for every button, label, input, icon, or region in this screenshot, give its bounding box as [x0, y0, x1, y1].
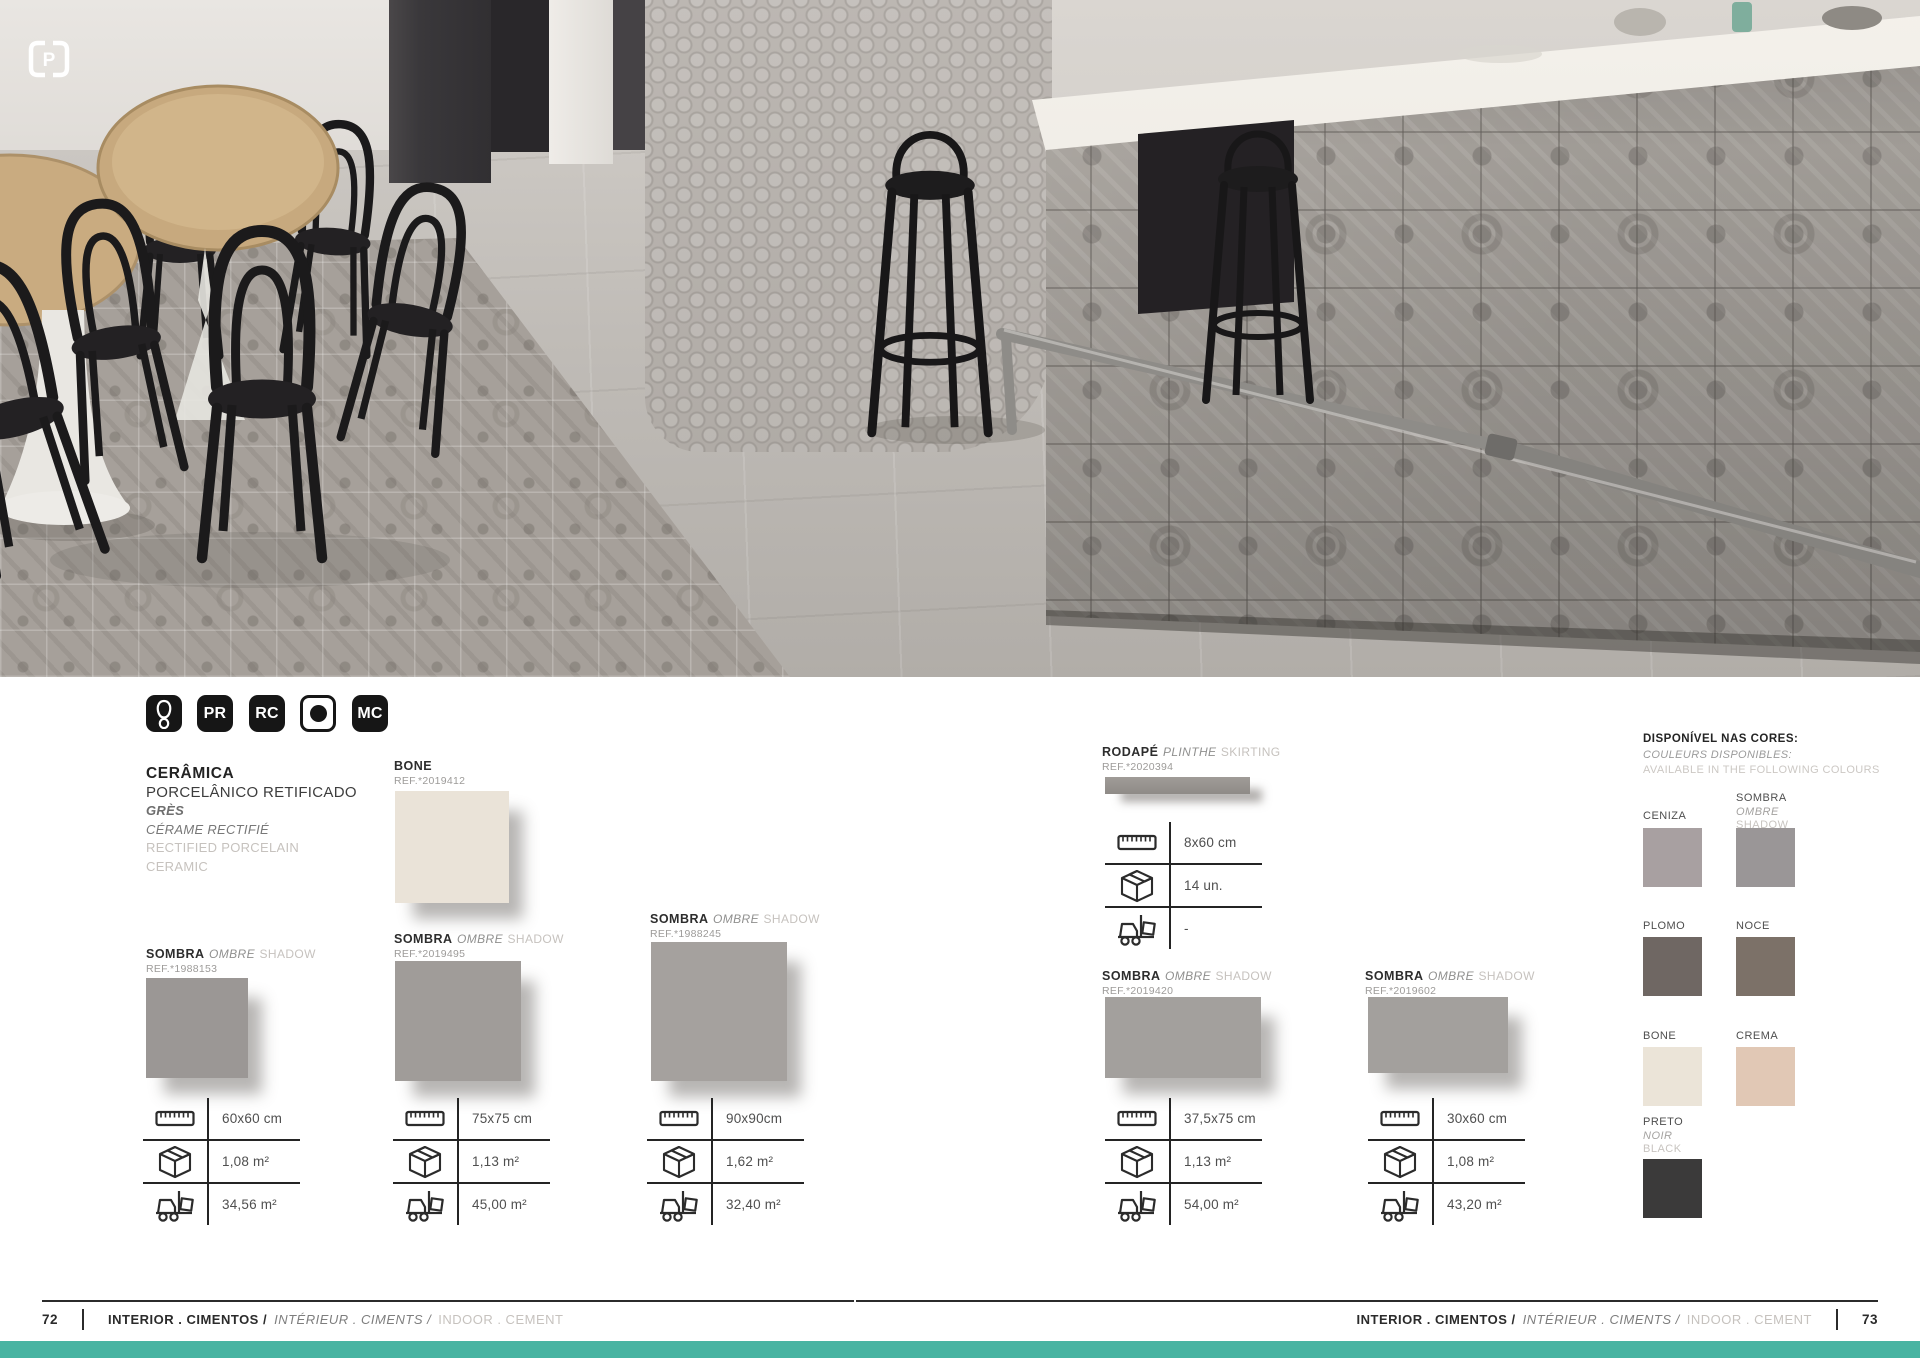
color-swatch-plomo [1643, 937, 1702, 996]
color-label-preto: PRETO NOIR BLACK [1643, 1116, 1683, 1157]
product-name-en: SHADOW [259, 947, 315, 961]
spec-row-box: 1,13 m² [393, 1139, 550, 1182]
footer-en: INDOOR . CEMENT [438, 1312, 563, 1327]
box-icon [1105, 865, 1171, 906]
product-name: BONE [394, 759, 432, 773]
tile-swatch-sombra-60 [146, 978, 248, 1078]
forklift-icon [393, 1184, 459, 1225]
cafe-photo: P [0, 0, 1920, 677]
mc-badge: MC [352, 695, 388, 732]
spec-row-size: 37,5x75 cm [1105, 1098, 1262, 1139]
spec-row-pallet: - [1105, 906, 1262, 949]
catalog-spread: P PR RC MC CERÂMICA PORCELÂNICO RETIFICA… [0, 0, 1920, 1358]
footer-fr: INTÉRIEUR . CIMENTS / [274, 1312, 431, 1327]
product-name: SOMBRA [1365, 969, 1424, 983]
material-en-1: RECTIFIED PORCELAIN [146, 839, 357, 858]
product-name-en: SHADOW [1478, 969, 1534, 983]
product-label-sombra-60: SOMBRA OMBRE SHADOW REF.*1988153 [146, 948, 316, 975]
spec-row-size: 30x60 cm [1368, 1098, 1525, 1139]
product-name: SOMBRA [650, 912, 709, 926]
spec-row-size: 90x90cm [647, 1098, 804, 1139]
pallet-value: 54,00 m² [1171, 1197, 1239, 1212]
product-ref: REF.*1988245 [650, 928, 820, 940]
colors-panel-subtitle-fr: COULEURS DISPONIBLES: [1643, 749, 1792, 761]
product-label-rodape: RODAPÉ PLINTHE SKIRTING REF.*2020394 [1102, 746, 1281, 773]
pallet-value: 32,40 m² [713, 1197, 781, 1212]
size-value: 30x60 cm [1434, 1111, 1507, 1126]
box-value: 1,08 m² [209, 1154, 269, 1169]
page-number-right: 73 [1862, 1312, 1878, 1327]
product-name-fr: OMBRE [1165, 969, 1211, 983]
pallet-value: 34,56 m² [209, 1197, 277, 1212]
pallet-value: 43,20 m² [1434, 1197, 1502, 1212]
box-icon [1105, 1141, 1171, 1182]
footer-fr: INTÉRIEUR . CIMENTS / [1523, 1312, 1680, 1327]
product-name: SOMBRA [1102, 969, 1161, 983]
box-value: 1,13 m² [1171, 1154, 1231, 1169]
material-description: CERÂMICA PORCELÂNICO RETIFICADO GRÈS CÉR… [146, 765, 357, 876]
ruler-icon [393, 1098, 459, 1139]
product-ref: REF.*2019602 [1365, 985, 1535, 997]
size-value: 90x90cm [713, 1111, 782, 1126]
product-ref: REF.*1988153 [146, 963, 316, 975]
color-swatch-bone [1643, 1047, 1702, 1106]
product-name-en: SHADOW [763, 912, 819, 926]
spec-row-size: 75x75 cm [393, 1098, 550, 1139]
box-icon [647, 1141, 713, 1182]
footer-divider [1836, 1309, 1838, 1330]
color-label-bone: BONE [1643, 1030, 1676, 1044]
material-fr-1: GRÈS [146, 802, 357, 821]
size-value: 8x60 cm [1171, 835, 1236, 850]
dot-icon [310, 705, 327, 722]
tile-swatch-bone [395, 791, 509, 903]
product-ref: REF.*2019495 [394, 948, 564, 960]
footer-divider [82, 1309, 84, 1330]
spec-table-sombra-60: 60x60 cm 1,08 m² 34,56 m² [143, 1098, 300, 1225]
product-ref: REF.*2019412 [394, 775, 465, 787]
spec-row-size: 8x60 cm [1105, 822, 1262, 863]
colors-panel-title: DISPONÍVEL NAS CORES: [1643, 733, 1798, 745]
footprint-icon [154, 699, 174, 729]
product-name-fr: OMBRE [457, 932, 503, 946]
product-name: SOMBRA [146, 947, 205, 961]
material-subtitle: PORCELÂNICO RETIFICADO [146, 784, 357, 803]
spec-table-sombra-30x60: 30x60 cm 1,08 m² 43,20 m² [1368, 1098, 1525, 1225]
box-value: 14 un. [1171, 878, 1223, 893]
teal-accent-bar [0, 1341, 1920, 1358]
box-icon [393, 1141, 459, 1182]
colors-panel-subtitle-en: AVAILABLE IN THE FOLLOWING COLOURS [1643, 764, 1880, 776]
color-label-plomo: PLOMO [1643, 920, 1685, 934]
pr-badge: PR [197, 695, 233, 732]
color-label-sombra: SOMBRA OMBRE SHADOW [1736, 792, 1789, 833]
box-value: 1,08 m² [1434, 1154, 1494, 1169]
product-name-fr: OMBRE [713, 912, 759, 926]
size-value: 60x60 cm [209, 1111, 282, 1126]
footer-en: INDOOR . CEMENT [1687, 1312, 1812, 1327]
ruler-icon [1105, 1098, 1171, 1139]
spec-row-box: 14 un. [1105, 863, 1262, 906]
forklift-icon [143, 1184, 209, 1225]
pallet-value: 45,00 m² [459, 1197, 527, 1212]
footer-pt: INTERIOR . CIMENTOS / [108, 1312, 267, 1327]
product-name-fr: OMBRE [209, 947, 255, 961]
spec-table-sombra-90: 90x90cm 1,62 m² 32,40 m² [647, 1098, 804, 1225]
color-label-noce: NOCE [1736, 920, 1770, 934]
color-label-ceniza: CENIZA [1643, 810, 1686, 824]
product-label-sombra-90: SOMBRA OMBRE SHADOW REF.*1988245 [650, 913, 820, 940]
forklift-icon [647, 1184, 713, 1225]
product-label-sombra-75: SOMBRA OMBRE SHADOW REF.*2019495 [394, 933, 564, 960]
spec-table-sombra-375x75: 37,5x75 cm 1,13 m² 54,00 m² [1105, 1098, 1262, 1225]
product-name-en: SHADOW [1215, 969, 1271, 983]
furniture-illustration [0, 0, 1920, 677]
color-swatch-ceniza [1643, 828, 1702, 887]
material-en-2: CERAMIC [146, 858, 357, 877]
spec-row-pallet: 45,00 m² [393, 1182, 550, 1225]
product-name-fr: PLINTHE [1163, 745, 1216, 759]
ruler-icon [143, 1098, 209, 1139]
size-value: 37,5x75 cm [1171, 1111, 1256, 1126]
color-swatch-sombra [1736, 828, 1795, 887]
spec-row-pallet: 54,00 m² [1105, 1182, 1262, 1225]
product-label-sombra-30x60: SOMBRA OMBRE SHADOW REF.*2019602 [1365, 970, 1535, 997]
color-label-crema: CREMA [1736, 1030, 1778, 1044]
spec-row-size: 60x60 cm [143, 1098, 300, 1139]
forklift-icon [1105, 1184, 1171, 1225]
footprint-badge [146, 695, 182, 732]
color-swatch-crema [1736, 1047, 1795, 1106]
brand-logo: P [26, 38, 72, 80]
product-name-fr: OMBRE [1428, 969, 1474, 983]
spec-row-box: 1,08 m² [1368, 1139, 1525, 1182]
mc-badge-label: MC [357, 705, 382, 723]
product-label-bone: BONE REF.*2019412 [394, 760, 465, 787]
spec-row-pallet: 43,20 m² [1368, 1182, 1525, 1225]
forklift-icon [1105, 908, 1171, 949]
product-ref: REF.*2019420 [1102, 985, 1272, 997]
material-title: CERÂMICA [146, 765, 357, 784]
product-name: RODAPÉ [1102, 745, 1158, 759]
product-label-sombra-375x75: SOMBRA OMBRE SHADOW REF.*2019420 [1102, 970, 1272, 997]
spec-row-box: 1,13 m² [1105, 1139, 1262, 1182]
product-name-en: SKIRTING [1221, 745, 1281, 759]
spec-row-box: 1,08 m² [143, 1139, 300, 1182]
pallet-value: - [1171, 921, 1189, 936]
tile-swatch-sombra-30x60 [1368, 997, 1508, 1073]
ruler-icon [647, 1098, 713, 1139]
footer-pt: INTERIOR . CIMENTOS / [1357, 1312, 1516, 1327]
spec-table-rodape: 8x60 cm 14 un. - [1105, 822, 1262, 949]
size-value: 75x75 cm [459, 1111, 532, 1126]
footer-right: INTERIOR . CIMENTOS / INTÉRIEUR . CIMENT… [856, 1300, 1878, 1330]
dot-badge [300, 695, 336, 732]
product-name-en: SHADOW [507, 932, 563, 946]
box-icon [1368, 1141, 1434, 1182]
spec-row-pallet: 32,40 m² [647, 1182, 804, 1225]
product-name: SOMBRA [394, 932, 453, 946]
spec-row-pallet: 34,56 m² [143, 1182, 300, 1225]
box-value: 1,13 m² [459, 1154, 519, 1169]
spec-row-box: 1,62 m² [647, 1139, 804, 1182]
tile-swatch-sombra-90 [651, 942, 787, 1081]
skirting-swatch [1105, 777, 1250, 794]
ruler-icon [1105, 822, 1171, 863]
color-swatch-preto [1643, 1159, 1702, 1218]
ruler-icon [1368, 1098, 1434, 1139]
logo-letter: P [43, 50, 56, 71]
tile-swatch-sombra-375x75 [1105, 997, 1261, 1078]
box-icon [143, 1141, 209, 1182]
rc-badge: RC [249, 695, 285, 732]
footer-left: 72 INTERIOR . CIMENTOS / INTÉRIEUR . CIM… [42, 1300, 854, 1330]
color-swatch-noce [1736, 937, 1795, 996]
page-number-left: 72 [42, 1312, 58, 1327]
forklift-icon [1368, 1184, 1434, 1225]
pr-badge-label: PR [204, 705, 227, 723]
spec-table-sombra-75: 75x75 cm 1,13 m² 45,00 m² [393, 1098, 550, 1225]
tile-swatch-sombra-75 [395, 961, 521, 1081]
product-ref: REF.*2020394 [1102, 761, 1281, 773]
material-fr-2: CÉRAME RECTIFIÉ [146, 821, 357, 840]
rc-badge-label: RC [255, 705, 279, 723]
box-value: 1,62 m² [713, 1154, 773, 1169]
